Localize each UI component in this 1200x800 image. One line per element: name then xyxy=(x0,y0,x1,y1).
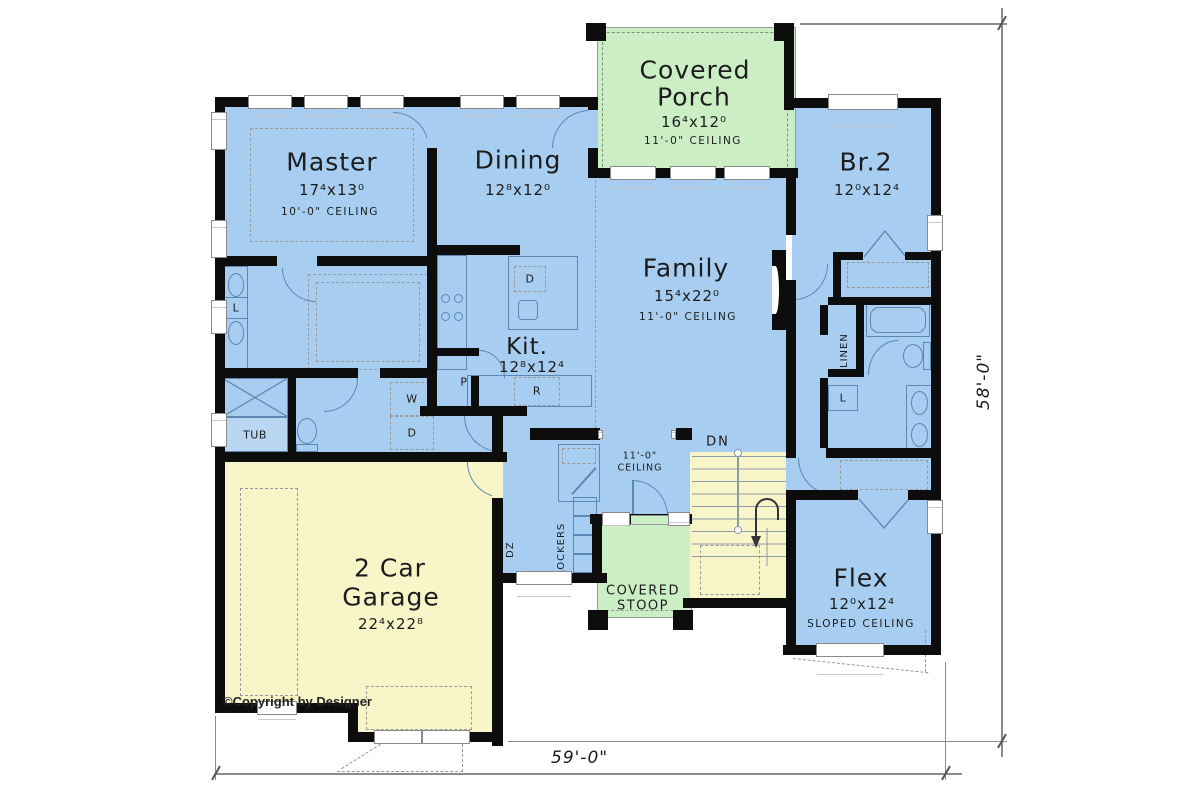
dining-name: Dining xyxy=(475,146,562,175)
pantry-label: P xyxy=(460,376,467,389)
window-br2-north xyxy=(828,94,898,110)
garage-bay-2 xyxy=(366,686,472,730)
window-master-2 xyxy=(304,95,348,109)
porch-name-1: Covered xyxy=(640,56,751,85)
flex-ceiling: SLOPED CEILING xyxy=(807,618,915,630)
stoop-post-se xyxy=(673,610,693,630)
flex-patio-diag xyxy=(793,658,928,673)
kitchen-name: Kit. xyxy=(506,334,548,360)
range-label: R xyxy=(533,385,541,398)
dim-ext-right xyxy=(945,662,946,780)
master-ceiling: 10'-0" CEILING xyxy=(281,206,379,218)
island-sink xyxy=(518,300,538,320)
dim-depth-label: 58'-0" xyxy=(974,338,994,410)
porch-size: 16⁴x12⁰ xyxy=(661,113,727,131)
driveway-line-3 xyxy=(462,744,463,772)
hall-bath-tub-inner xyxy=(870,307,926,333)
stoop-name-2: STOOP xyxy=(617,599,669,614)
br2-name: Br.2 xyxy=(840,148,893,177)
porch-ceiling: 11'-0" CEILING xyxy=(644,135,742,147)
driveway-line-1 xyxy=(341,744,381,769)
garage-name-2: Garage xyxy=(342,583,440,612)
window-left-3 xyxy=(211,300,227,334)
wall-flex-north-right xyxy=(908,490,941,500)
br2-closet-bifold-icon xyxy=(863,228,907,258)
window-flex-south xyxy=(816,643,884,657)
wall-bath2-south xyxy=(826,448,941,458)
stoop-post-sw xyxy=(588,610,608,630)
wall-left xyxy=(215,97,225,712)
hall-toilet-tank xyxy=(923,342,931,370)
kitchen-size: 12⁸x12⁴ xyxy=(499,358,565,376)
wall-family-south-right xyxy=(676,428,692,440)
stairs-down-label: DN xyxy=(706,435,730,450)
master-sink-2 xyxy=(228,321,244,345)
master-toilet-tank xyxy=(296,444,318,452)
window-hall-east xyxy=(927,500,943,534)
window-dining-1 xyxy=(460,95,504,109)
garage-name-1: 2 Car xyxy=(354,554,426,583)
cooktop-burner-2 xyxy=(454,294,463,303)
stair-newel-bottom xyxy=(734,526,742,534)
drop-zone-label: DZ xyxy=(505,522,516,558)
shower-x-icon xyxy=(222,378,288,417)
wall-spine-east-3 xyxy=(786,498,796,655)
window-master-3 xyxy=(360,95,404,109)
wall-flex-north-left xyxy=(786,490,858,500)
dim-line-right xyxy=(1001,8,1003,757)
lockers-label: LOCKERS xyxy=(556,496,567,576)
stair-newel-top xyxy=(734,449,742,457)
dim-ext-top-right xyxy=(800,23,1007,25)
fireplace-insert xyxy=(772,266,779,314)
master-toilet-bowl xyxy=(297,418,317,444)
hall-toilet-bowl xyxy=(903,344,923,368)
door-gap-master xyxy=(427,110,437,148)
window-left-4 xyxy=(211,413,227,447)
family-break-line xyxy=(595,180,596,428)
front-door-leaf xyxy=(632,480,634,516)
dim-line-bottom xyxy=(215,773,962,775)
family-ceiling: 11'-0" CEILING xyxy=(639,311,737,323)
wall-br2-closet-south xyxy=(828,297,941,305)
wall-stair-south xyxy=(683,598,796,608)
wall-bath-south-right xyxy=(380,368,437,378)
door-gap-porch xyxy=(588,110,598,148)
wall-linen-east xyxy=(856,305,864,377)
wall-linen-south xyxy=(828,369,864,377)
porch-name-2: Porch xyxy=(657,83,731,112)
flex-name: Flex xyxy=(833,564,888,593)
br2-closet-rod xyxy=(847,262,929,288)
front-door-sidelite-left xyxy=(602,512,630,526)
hall-sink-1 xyxy=(911,391,928,415)
garage-bay-1 xyxy=(240,488,298,696)
window-left-2 xyxy=(211,220,227,258)
stair-rail xyxy=(737,452,739,530)
master-closet-shelves xyxy=(316,282,420,362)
flex-size: 12⁰x12⁴ xyxy=(829,595,895,613)
window-family-3 xyxy=(724,166,770,180)
wall-kitchen-south xyxy=(420,406,527,416)
entry-ceiling-2: CEILING xyxy=(618,463,663,474)
door-gap-garage xyxy=(492,462,503,498)
dryer-label: D xyxy=(408,427,417,440)
wall-garage-east-lower xyxy=(492,498,503,746)
wall-porch-left-upper xyxy=(588,97,598,110)
porch-post-nw xyxy=(586,23,606,41)
garage-size: 22⁴x22⁸ xyxy=(358,615,424,633)
wall-master-south-left xyxy=(224,256,277,266)
wall-bath-south-left xyxy=(215,368,358,378)
wall-spine-east-2 xyxy=(786,280,796,458)
dim-ext-bottom-right xyxy=(508,741,1007,742)
wall-family-south-left xyxy=(530,428,600,440)
wall-kitchen-north xyxy=(427,245,520,255)
stoop-name-1: COVERED xyxy=(606,584,680,599)
hall-sink-2 xyxy=(911,423,928,447)
floor-plan-sheet: L TUB W D D R P LOCKERS DZ LINE xyxy=(0,0,1200,800)
window-family-1 xyxy=(610,166,656,180)
cooktop-burner-1 xyxy=(441,294,450,303)
br2-size: 12⁰x12⁴ xyxy=(834,181,900,199)
master-size: 17⁴x13⁰ xyxy=(299,181,365,199)
cooktop-burner-4 xyxy=(454,312,463,321)
linen-closet-label: LINEN xyxy=(839,312,850,368)
master-linen-label: L xyxy=(233,302,240,315)
family-name: Family xyxy=(643,254,729,283)
window-left-1 xyxy=(211,112,227,150)
washer-label: W xyxy=(406,393,417,406)
l-closet-label: L xyxy=(840,392,847,405)
front-door-threshold xyxy=(631,515,668,524)
front-door-sidelite-right xyxy=(668,512,690,526)
wall-hall-east-lower xyxy=(820,378,828,448)
copyright-text: ©Copyright by Designer xyxy=(223,694,372,709)
window-master-1 xyxy=(248,95,292,109)
garage-door-mullion xyxy=(421,731,423,743)
driveway-line-2 xyxy=(337,771,463,772)
window-dining-2 xyxy=(516,95,560,109)
wall-br2-closet-north-right xyxy=(905,252,941,260)
window-br2-east xyxy=(927,215,943,251)
cased-opening-jamb-right xyxy=(671,430,676,439)
entry-ceiling-1: 11'-0" xyxy=(623,451,658,462)
understair-storage xyxy=(700,545,760,595)
entry-closet-rod xyxy=(562,448,596,464)
master-sink-1 xyxy=(228,273,244,297)
window-family-2 xyxy=(670,166,716,180)
wall-garage-east-upper xyxy=(492,415,503,462)
cooktop-burner-3 xyxy=(441,312,450,321)
dishwasher-label: D xyxy=(526,273,535,286)
family-size: 15⁴x22⁰ xyxy=(654,287,720,305)
wall-garage-north xyxy=(215,452,507,462)
wall-porch-right xyxy=(784,23,794,110)
master-name: Master xyxy=(286,148,377,177)
window-mud-south xyxy=(516,571,572,585)
wall-shower-east xyxy=(288,378,296,452)
wall-hall-east-upper xyxy=(820,305,828,335)
wall-master-south-right xyxy=(317,256,437,266)
wall-spine-east-1 xyxy=(786,178,796,235)
wall-right xyxy=(931,98,941,655)
flex-closet-bifold-icon xyxy=(858,498,910,530)
cased-opening-jamb-left xyxy=(598,430,603,439)
dim-width-label: 59'-0" xyxy=(551,748,608,768)
master-tub-label: TUB xyxy=(243,429,267,442)
flex-closet-shelf xyxy=(840,460,928,490)
dining-size: 12⁸x12⁰ xyxy=(485,181,551,199)
